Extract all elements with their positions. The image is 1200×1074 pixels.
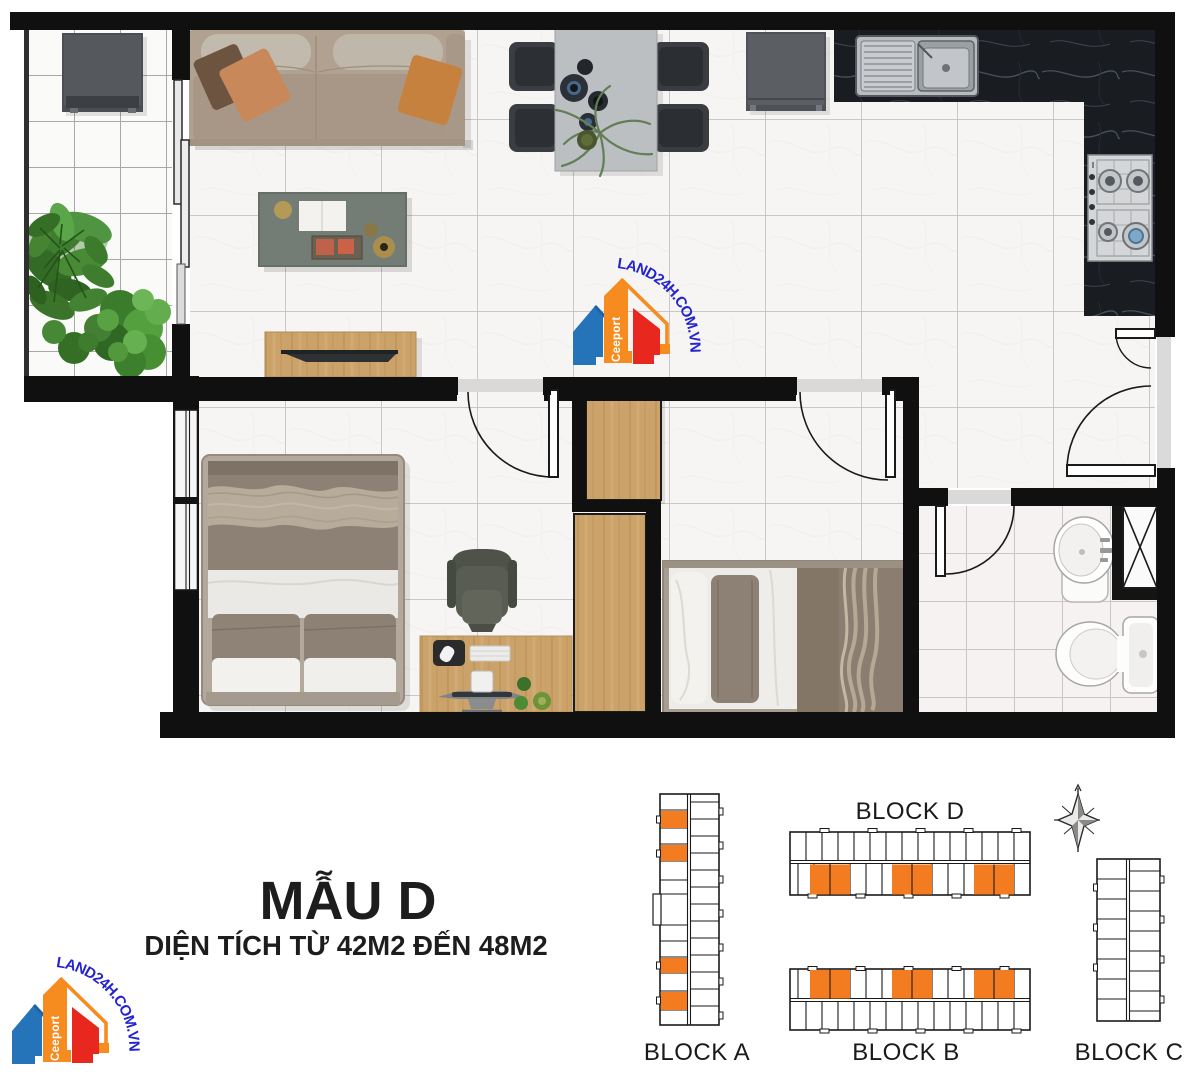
svg-text:BLOCK D: BLOCK D [856,798,965,825]
svg-text:BLOCK B: BLOCK B [852,1039,960,1066]
svg-text:BLOCK A: BLOCK A [644,1039,750,1066]
svg-text:BLOCK C: BLOCK C [1075,1039,1184,1066]
svg-text:MẪU D: MẪU D [260,870,437,931]
svg-text:DIỆN TÍCH TỪ 42M2 ĐẾN 48M2: DIỆN TÍCH TỪ 42M2 ĐẾN 48M2 [144,930,547,961]
